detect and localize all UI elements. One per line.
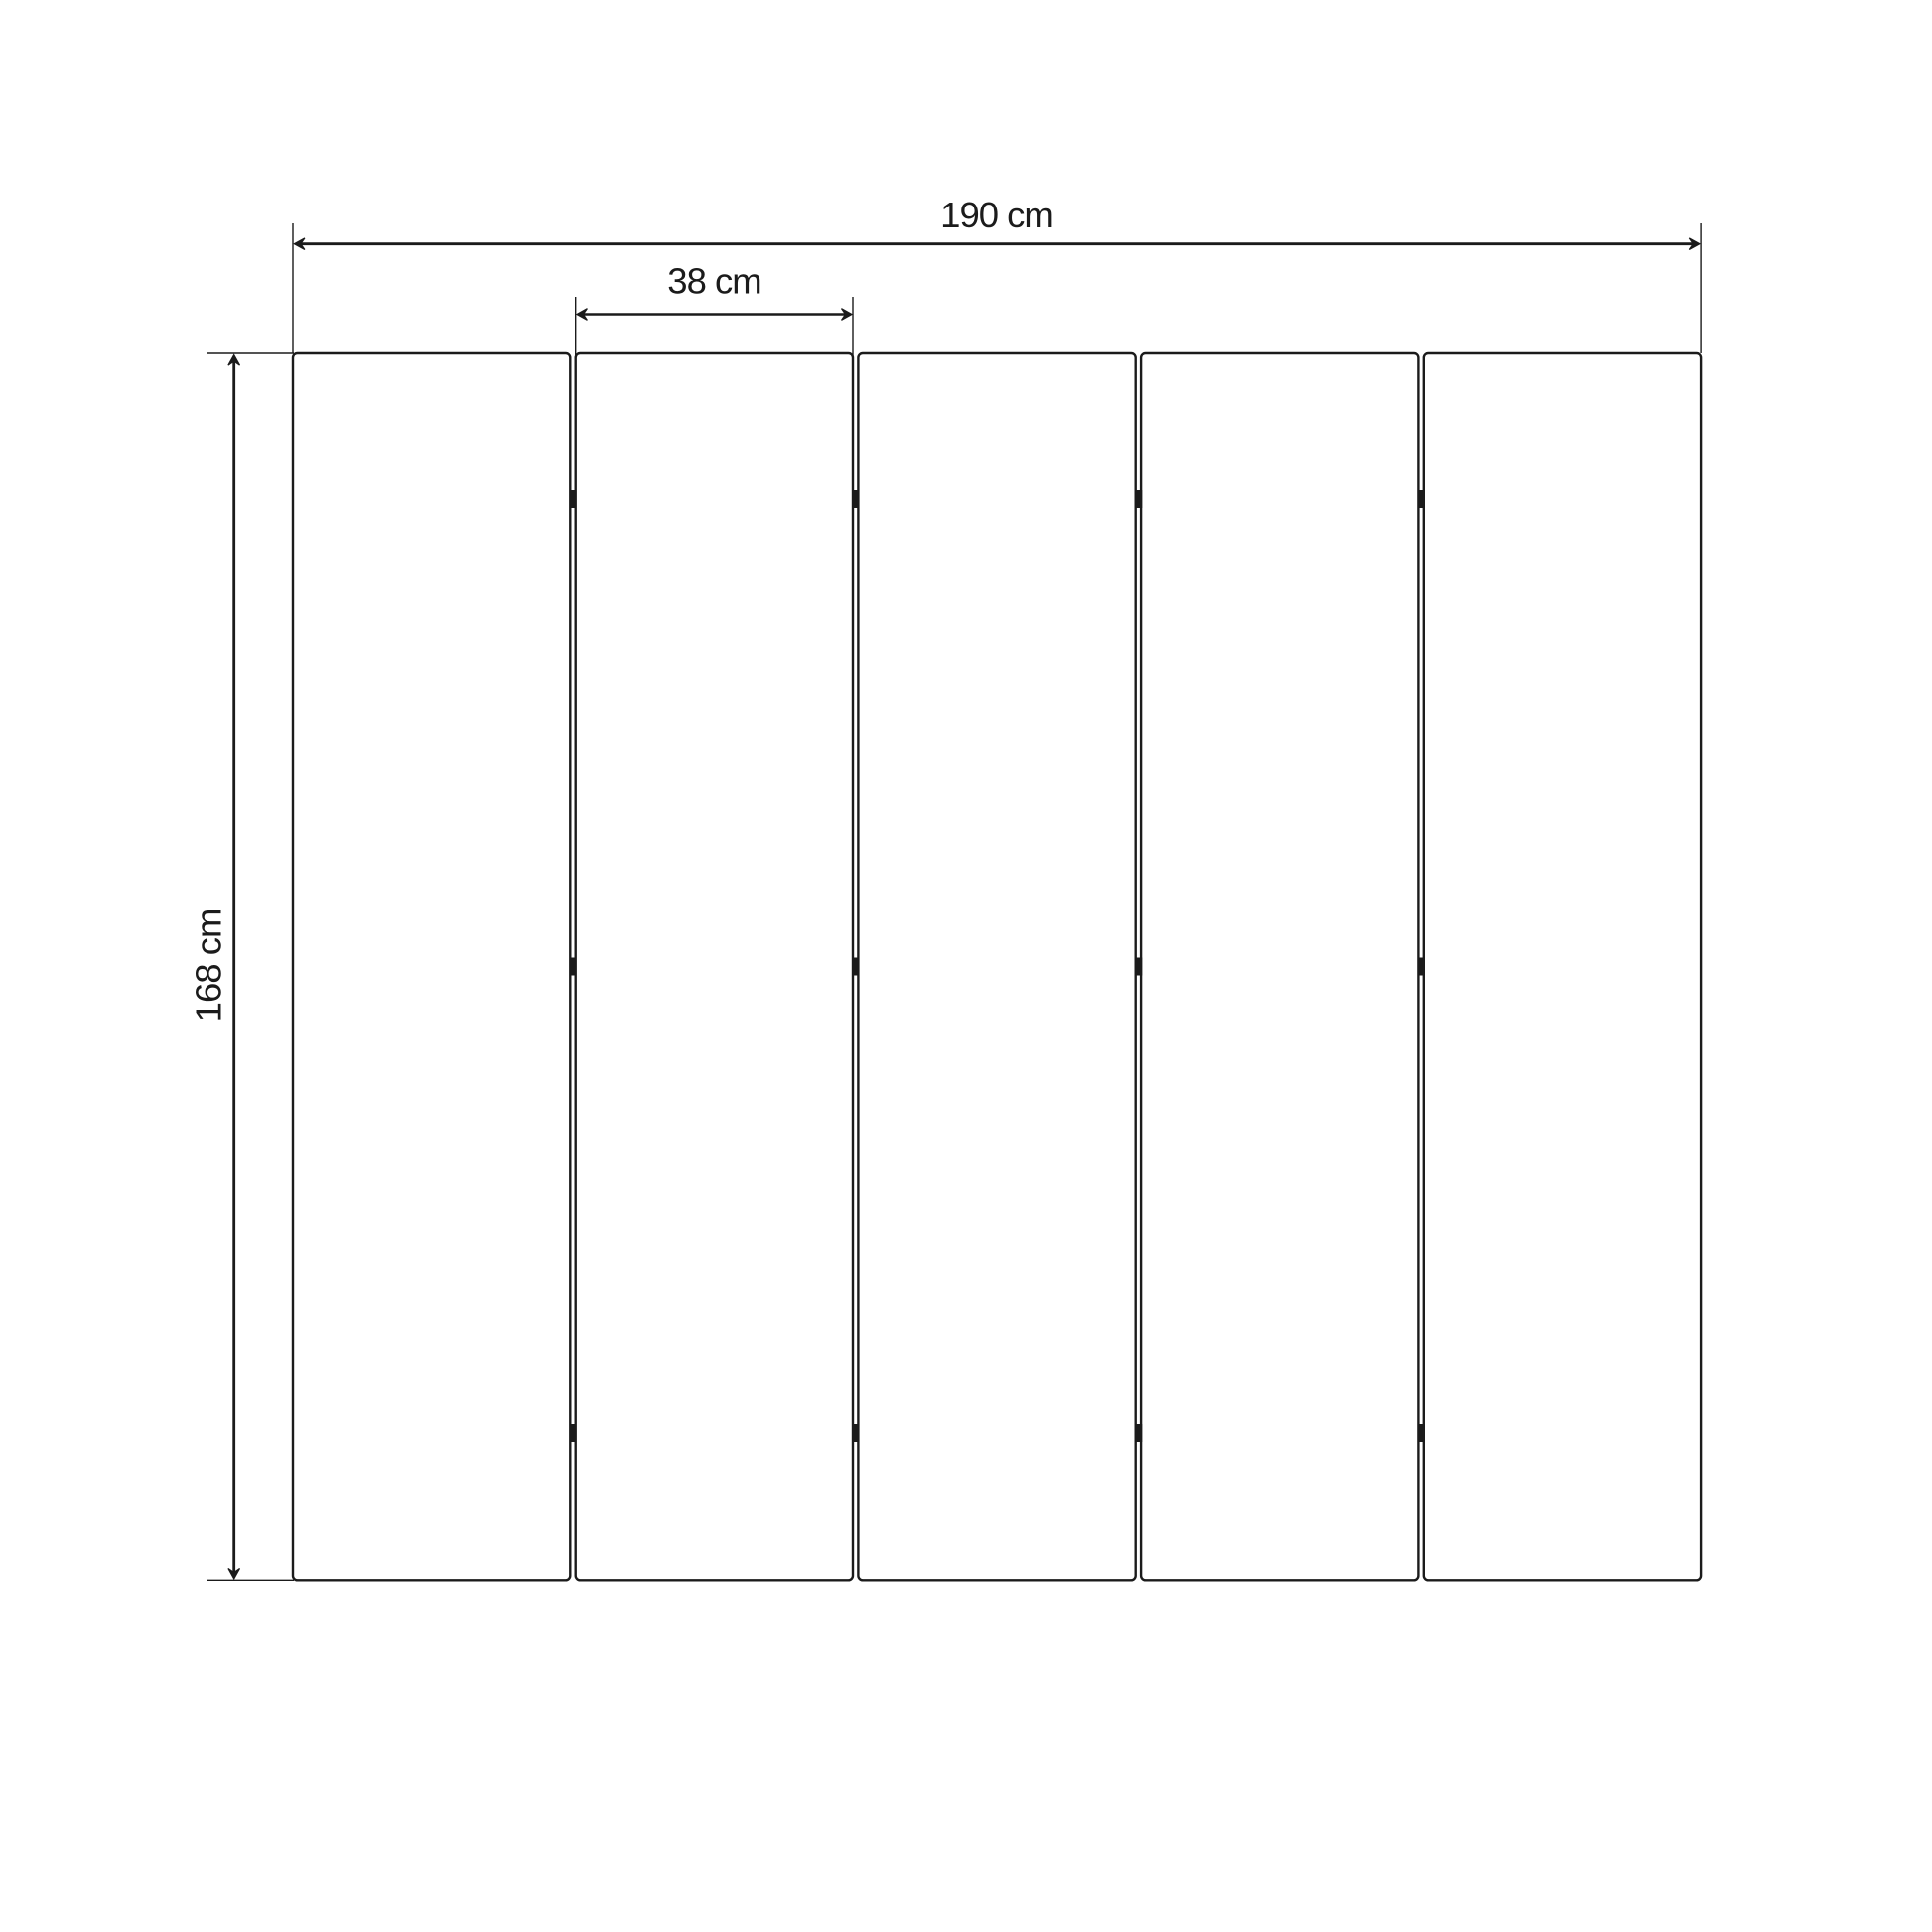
svg-text:38 cm: 38 cm: [667, 261, 760, 302]
svg-text:190 cm: 190 cm: [940, 195, 1053, 235]
svg-text:168 cm: 168 cm: [189, 909, 229, 1023]
